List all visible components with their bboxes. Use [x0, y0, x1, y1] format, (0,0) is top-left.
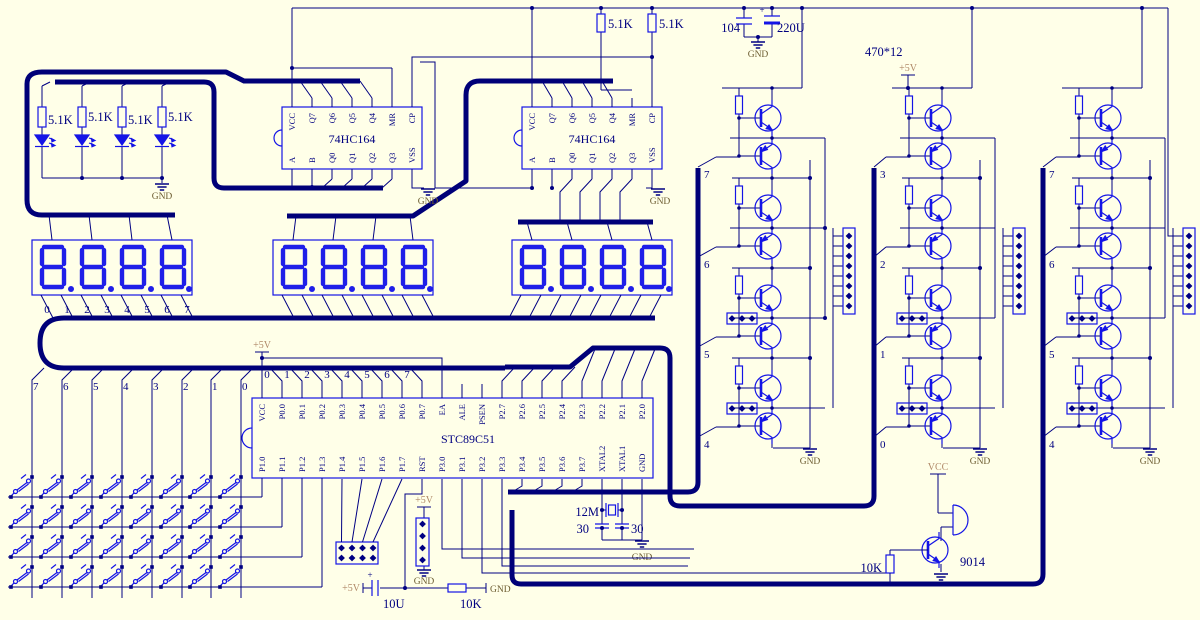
mcu-pin-label: P1.0 — [257, 457, 267, 472]
ic-title: 74HC164 — [569, 132, 616, 146]
key-bus-number: 0 — [242, 381, 248, 393]
mcu-pin-label: P0.5 — [377, 404, 387, 419]
digit-select-number: 4 — [704, 439, 710, 451]
mcu-pin-label: P1.7 — [397, 457, 407, 472]
ic-pin-label: VSS — [647, 147, 657, 163]
gnd-label: GND — [748, 50, 769, 60]
p0-bus-number: 5 — [364, 369, 370, 381]
mcu-pin-label: P2.6 — [517, 404, 527, 419]
mcu-pin-label: P2.2 — [597, 404, 607, 419]
gnd-label: GND — [970, 457, 991, 467]
ic-pin-label: CP — [647, 113, 657, 124]
polarity-plus: + — [367, 570, 372, 580]
p0-bus-number: 6 — [384, 369, 390, 381]
mcu-pin-label: P3.0 — [437, 457, 447, 472]
mcu-pin-label: ALE — [457, 404, 467, 421]
seven-segment-displays: 0 1 2 3 4 5 6 7 — [32, 215, 672, 318]
polarity-plus: + — [759, 5, 764, 15]
ic-pin-label: Q2 — [607, 153, 617, 163]
resistor-array-value: 470*12 — [865, 45, 903, 59]
mcu-pin-label: P1.1 — [277, 457, 287, 472]
mcu-pin-label: P1.2 — [297, 457, 307, 472]
led-resistor-value: 5.1K — [128, 113, 153, 127]
mcu-pin-label: P2.4 — [557, 403, 567, 419]
p0-bus-number: 2 — [304, 369, 310, 381]
gnd-label: GND — [490, 585, 511, 595]
mcu-pin-label: P0.2 — [317, 404, 327, 419]
p0-bus-number: 0 — [264, 369, 270, 381]
p0-bus-number: 4 — [344, 369, 350, 381]
display-pin-number: 7 — [184, 304, 190, 316]
mcu-pin-label: P3.7 — [577, 457, 587, 472]
ic-notch — [242, 428, 252, 448]
ic-title: 74HC164 — [329, 132, 376, 146]
mcu-pin-label: P2.1 — [617, 404, 627, 419]
mcu-pin-label: P0.7 — [417, 404, 427, 419]
ic-pin-label: Q1 — [587, 153, 597, 163]
mcu-pin-label: P3.5 — [537, 457, 547, 472]
digit-select-number: 6 — [704, 259, 710, 271]
key-bus-number: 7 — [33, 381, 39, 393]
mcu-pin-label: RST — [417, 456, 427, 472]
ic-pin-label: Q4 — [367, 112, 377, 123]
mcu-pin-label: XTAL1 — [617, 446, 627, 472]
reset-cap-value: 10U — [383, 597, 405, 611]
driver-column-2: +5V GND 3 2 1 0 — [874, 8, 1025, 467]
key-bus-number: 5 — [93, 381, 99, 393]
key-bus-number: 4 — [123, 381, 129, 393]
cap-value: 104 — [721, 21, 741, 35]
led-resistor-value: 5.1K — [48, 113, 73, 127]
top-passives: 5.1K 5.1K + GND 104 220U 470*12 — [597, 5, 903, 60]
ic-pin-label: Q3 — [387, 153, 397, 163]
gnd-label: GND — [1140, 457, 1161, 467]
digit-select-number: 3 — [880, 169, 886, 181]
digit-select-number: 7 — [704, 169, 710, 181]
gnd-label: GND — [152, 192, 173, 202]
reset-resistor-value: 10K — [460, 597, 482, 611]
ic-pin-label: Q5 — [347, 113, 357, 123]
display-pin-number: 6 — [164, 304, 170, 316]
mcu-pin-label: VCC — [257, 404, 267, 422]
crystal-value: 12M — [575, 505, 599, 519]
key-bus-number: 6 — [63, 381, 69, 393]
ic-pin-label: B — [307, 157, 317, 163]
load-cap-value: 30 — [577, 522, 590, 536]
mcu-pin-label: P1.6 — [377, 457, 387, 472]
led-resistor-value: 5.1K — [88, 110, 113, 124]
mcu-pin-label: XTAL2 — [597, 446, 607, 472]
p0-bus-number: 1 — [284, 369, 290, 381]
ic-pin-label: Q2 — [367, 153, 377, 163]
mcu-pin-label: EA — [437, 403, 447, 415]
v5-label: +5V — [342, 583, 361, 594]
driver-column-3: GND 7 6 5 4 — [1043, 8, 1195, 467]
mcu-pin-label: P0.3 — [337, 404, 347, 419]
mcu-pin-label: P0.1 — [297, 404, 307, 419]
p0-bus-number: 7 — [404, 369, 410, 381]
mcu: STC89C51 +5V 0 1 2 3 4 5 6 7 VCC P0.0 P0… — [242, 340, 655, 492]
ic-pin-label: VCC — [527, 113, 537, 131]
digit-select-number: 2 — [880, 259, 886, 271]
display-pin-number: 0 — [44, 304, 50, 316]
mcu-pin-label: P2.0 — [637, 404, 647, 419]
v5-label: +5V — [415, 495, 434, 506]
ic-pin-label: VSS — [407, 147, 417, 163]
mcu-pin-label: P0.6 — [397, 404, 407, 419]
display-pin-number: 2 — [84, 304, 90, 316]
ic-pin-label: B — [547, 157, 557, 163]
ic-pin-label: MR — [627, 113, 637, 127]
keypad-matrix: 7 6 5 4 3 2 1 0 — [8, 368, 322, 598]
ic-pin-label: A — [287, 156, 297, 163]
digit-select-number: 6 — [1049, 259, 1055, 271]
display-pin-number: 5 — [144, 304, 150, 316]
isp-headers: +5V GND — [336, 479, 434, 587]
mcu-pin-label: P3.1 — [457, 457, 467, 472]
mcu-pin-label: P2.5 — [537, 404, 547, 419]
mcu-pin-label: P3.4 — [517, 456, 527, 472]
ic-pin-label: VCC — [287, 113, 297, 131]
ic-pin-label: A — [527, 156, 537, 163]
mcu-pin-label: P0.0 — [277, 404, 287, 419]
cap-value: 220U — [777, 21, 805, 35]
driver-column-1: GND 7 6 5 4 — [698, 8, 855, 467]
gnd-label: GND — [650, 197, 671, 207]
schematic-page: GND 5.1K 5.1K 5.1K 5.1K GND 74HC164 VCC … — [0, 0, 1200, 620]
digit-select-number: 5 — [1049, 349, 1055, 361]
ic-pin-label: MR — [387, 113, 397, 127]
digit-select-number: 0 — [880, 439, 886, 451]
v5-label: +5V — [899, 63, 918, 74]
base-resistor-value: 10K — [860, 561, 882, 575]
ic-pin-label: Q4 — [607, 112, 617, 123]
display-pin-number: 3 — [104, 304, 110, 316]
ic-pin-label: Q7 — [547, 113, 557, 123]
mcu-pin-label: P1.5 — [357, 457, 367, 472]
gnd-label: GND — [414, 577, 435, 587]
ic-pin-label: Q5 — [587, 113, 597, 123]
ic-pin-label: Q1 — [347, 153, 357, 163]
ic-notch — [274, 130, 282, 146]
digit-select-number: 7 — [1049, 169, 1055, 181]
ic-title: STC89C51 — [441, 432, 495, 446]
mcu-pin-label: P2.7 — [497, 404, 507, 419]
display-pin-number: 4 — [124, 304, 130, 316]
digit-select-number: 1 — [880, 349, 886, 361]
key-bus-number: 3 — [153, 381, 159, 393]
p0-bus-number: 3 — [324, 369, 330, 381]
mcu-pin-label: P1.3 — [317, 457, 327, 472]
load-cap-value: 30 — [631, 522, 644, 536]
mcu-pin-label: P0.4 — [357, 403, 367, 419]
vcc-label: VCC — [928, 462, 949, 473]
pullup-resistor-value: 5.1K — [659, 17, 684, 31]
mcu-pin-label: P3.3 — [497, 457, 507, 472]
gnd-label: GND — [800, 457, 821, 467]
shift-register-2: GND 74HC164 VCC Q7 Q6 Q5 Q4 MR CP A B Q0… — [420, 8, 670, 222]
ic-pin-label: Q0 — [327, 153, 337, 163]
key-bus-number: 2 — [183, 381, 189, 393]
mcu-pin-label: P3.6 — [557, 457, 567, 472]
ic-pin-label: Q7 — [307, 113, 317, 123]
digit-select-number: 5 — [704, 349, 710, 361]
key-switches — [9, 475, 243, 589]
schematic-canvas: GND 5.1K 5.1K 5.1K 5.1K GND 74HC164 VCC … — [0, 0, 1200, 620]
mcu-pin-label: P1.4 — [337, 456, 347, 472]
pullup-resistor-value: 5.1K — [608, 17, 633, 31]
ic-pin-label: CP — [407, 113, 417, 124]
bus-routing — [27, 72, 1043, 584]
ic-pin-label: Q6 — [567, 113, 577, 123]
mcu-pin-label: PSEN — [477, 404, 487, 425]
mcu-pin-label: GND — [637, 454, 647, 472]
led-indicator-block: GND 5.1K 5.1K 5.1K 5.1K — [35, 82, 193, 202]
v5-label: +5V — [253, 340, 272, 351]
digit-select-number: 4 — [1049, 439, 1055, 451]
led-resistor-value: 5.1K — [168, 110, 193, 124]
display-pin-number: 1 — [64, 304, 70, 316]
buzzer-circuit: VCC 10K 9014 — [860, 462, 985, 584]
ic-pin-label: Q0 — [567, 153, 577, 163]
mcu-pin-label: P2.3 — [577, 404, 587, 419]
transistor-type: 9014 — [960, 555, 986, 569]
key-bus-number: 1 — [212, 381, 218, 393]
gnd-symbol — [155, 184, 169, 190]
mcu-pin-label: P3.2 — [477, 457, 487, 472]
ic-pin-label: Q3 — [627, 153, 637, 163]
gnd-label: GND — [418, 197, 439, 207]
ic-notch — [514, 130, 522, 146]
ic-pin-label: Q6 — [327, 113, 337, 123]
